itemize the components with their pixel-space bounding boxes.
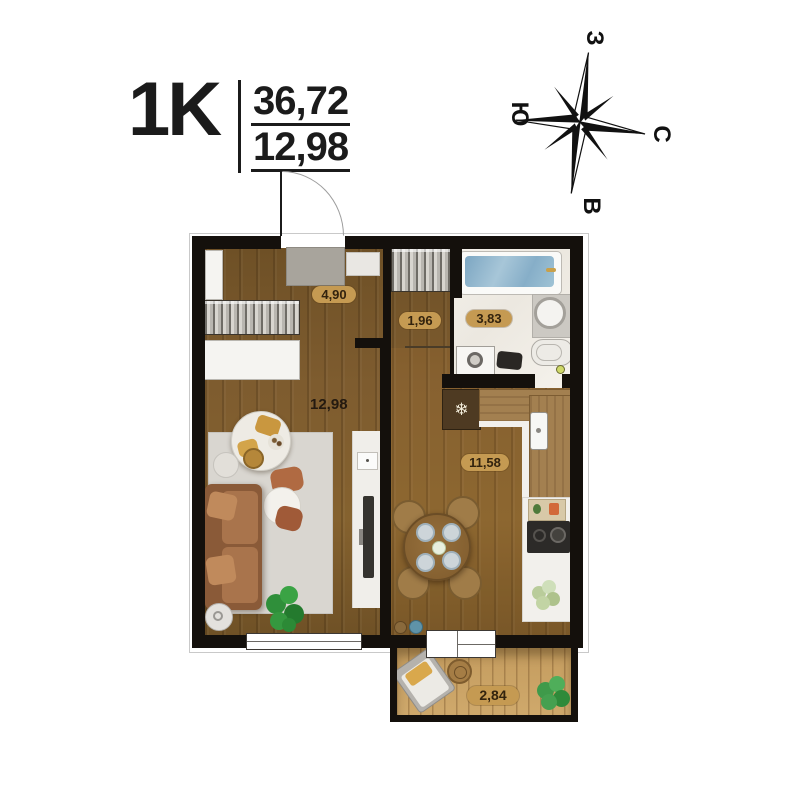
tv-console — [352, 431, 381, 608]
burner-1 — [533, 529, 546, 542]
living-area-value: 12,98 — [251, 126, 350, 172]
living-area-label: 12,98 — [310, 396, 348, 413]
table-lamp — [243, 448, 264, 469]
compass-letter-north: С — [648, 125, 672, 142]
compass-rose: З Ю С В — [492, 22, 672, 218]
plate-1 — [416, 523, 435, 542]
closet-clothes-rail — [391, 248, 452, 292]
header-divider — [238, 80, 241, 173]
kitchen-area-label: 11,58 — [461, 454, 509, 471]
washing-machine-drum — [467, 352, 483, 368]
robot-vacuum-ring — [213, 611, 223, 621]
vegetables — [533, 504, 541, 514]
hallway-shelf — [205, 250, 223, 300]
hallway-area-label: 4,90 — [312, 286, 356, 303]
compass-letter-south: Ю — [506, 102, 533, 127]
balcony-table-ring — [454, 666, 467, 679]
living-plant — [262, 584, 306, 636]
wall-bath-bottom-right — [562, 374, 583, 388]
wall-closet-left — [383, 248, 391, 340]
sofa-pillow-1 — [206, 490, 239, 521]
compass-letter-west: З — [581, 30, 608, 45]
kitchen-flowers — [530, 578, 564, 614]
entry-doormat — [286, 247, 345, 286]
robot-vacuum — [205, 603, 233, 631]
balcony-window-mullion — [457, 644, 495, 645]
sofa — [205, 484, 262, 610]
dining-table — [403, 513, 471, 581]
wall-bath-bottom — [442, 374, 535, 388]
bath-faucet — [546, 268, 556, 272]
pet-bowl-2 — [409, 620, 423, 634]
balcony-plant — [535, 674, 573, 714]
tv-screen — [363, 496, 374, 578]
bathroom-sink — [534, 297, 566, 329]
wall-top-left — [192, 236, 281, 249]
stove — [527, 521, 570, 553]
living-window — [246, 633, 362, 650]
balcony-wall-left — [390, 648, 397, 722]
fridge-snowflake-icon: ❄ — [454, 400, 468, 419]
balcony-door-block — [426, 630, 496, 658]
wall-top-right — [345, 236, 583, 249]
pet-bowl-1 — [394, 621, 407, 634]
sofa-pillow-2 — [205, 554, 237, 586]
side-stool — [213, 452, 239, 478]
toilet-seat — [536, 344, 562, 361]
compass-letter-east: В — [578, 197, 605, 214]
toilet — [531, 339, 573, 366]
cutting-board — [528, 499, 566, 521]
bathtub — [459, 251, 562, 295]
hallway-mat — [346, 252, 380, 276]
wall-bath-left — [450, 248, 462, 298]
kitchen-counter-edge-right — [522, 421, 529, 497]
wall-left — [192, 236, 205, 648]
kitchen-sink — [530, 412, 548, 450]
wall-stub — [355, 338, 391, 348]
bathroom-door-handle — [556, 365, 565, 374]
bath-mat — [496, 351, 523, 371]
plan-type-label: 1K — [128, 66, 219, 153]
entry-door-arc — [282, 171, 344, 236]
balcony-wall-bottom — [390, 715, 578, 722]
washing-machine — [456, 346, 495, 376]
salmon — [549, 503, 559, 515]
laptop — [357, 452, 378, 470]
balcony-side-table — [447, 659, 472, 684]
tv-stand — [359, 529, 363, 545]
closet-area-label: 1,96 — [399, 312, 441, 329]
wall-right — [570, 236, 583, 648]
balcony-area-label: 2,84 — [467, 686, 519, 705]
wardrobe-clothes-rail — [204, 300, 300, 335]
bathtub-water — [465, 256, 554, 287]
laptop-dot — [366, 459, 369, 462]
bathroom-area-label: 3,83 — [466, 310, 512, 327]
living-window-mullion — [247, 641, 361, 642]
balcony-wall-right — [571, 648, 578, 722]
kitchen-sink-drain — [536, 428, 541, 433]
wall-living-kitchen — [380, 348, 391, 648]
closet-door-line — [405, 346, 450, 348]
table-decor-twigs — [268, 434, 284, 450]
total-area-value: 36,72 — [251, 80, 350, 126]
plate-4 — [442, 551, 461, 570]
floorplan-canvas: 1K 36,72 12,98 З Ю С В — [0, 0, 800, 800]
plate-2 — [442, 523, 461, 542]
fridge: ❄ — [442, 389, 481, 430]
centerpiece — [432, 541, 446, 555]
plate-3 — [416, 553, 435, 572]
pot — [550, 527, 566, 543]
hallway-cabinet — [204, 340, 300, 380]
